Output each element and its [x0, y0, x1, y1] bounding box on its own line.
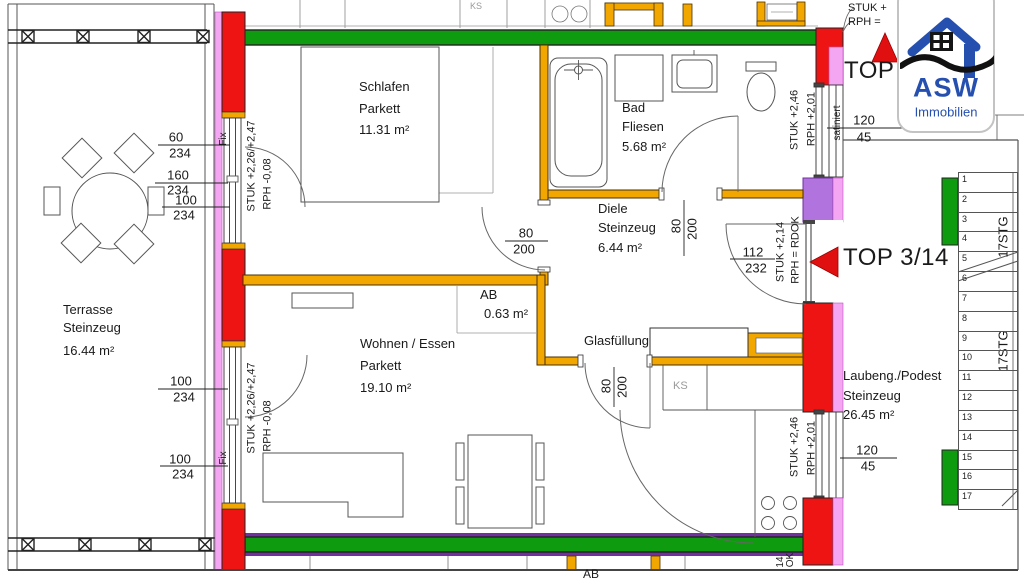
logo-subtitle: Immobilien — [915, 105, 978, 120]
room-wohnen-name: Wohnen / Essen — [360, 337, 455, 350]
dim-win100c-bot: 234 — [172, 468, 194, 481]
stair-number: 14 — [962, 432, 972, 442]
wall-glas-right — [650, 357, 803, 365]
room-wohnen-area: 19.10 m² — [360, 381, 411, 394]
dim-win120b-top: 120 — [856, 444, 878, 457]
kitchen-nook-inner — [756, 338, 802, 353]
stair-tread: 1 — [959, 173, 1017, 192]
stair-tread: 13 — [959, 410, 1017, 430]
stuk-partial-label: STUK + — [848, 3, 887, 14]
dim-door80a-bot: 200 — [513, 243, 535, 256]
room-diele-area: 6.44 m² — [598, 241, 642, 254]
room-laubengang-area: 26.45 m² — [843, 408, 894, 421]
stair-number: 7 — [962, 293, 967, 303]
ab-bottom-label: AB — [583, 568, 599, 580]
room-wohnen-floor: Parkett — [360, 359, 401, 372]
stair-tread: 4 — [959, 231, 1017, 251]
dim-win120a-bot: 45 — [857, 131, 871, 144]
wall-ab-diele — [537, 275, 545, 365]
red-wall-segment — [803, 303, 833, 412]
room-diele-name: Diele — [598, 202, 628, 215]
chair — [536, 443, 544, 480]
stair-number: 5 — [962, 253, 967, 263]
stair-number: 4 — [962, 233, 967, 243]
room-ab-name: AB — [480, 288, 497, 301]
swoosh-icon — [901, 56, 994, 70]
stuk-annotation: STUK +2,26/+2,47 — [247, 120, 258, 211]
wall-schlafen-wohnen — [243, 275, 537, 285]
stair-tread: 7 — [959, 291, 1017, 311]
chair — [44, 187, 60, 215]
stair-tread: 14 — [959, 430, 1017, 450]
room-terrasse-name: Terrasse — [63, 303, 113, 316]
dim-win100b-bot: 234 — [173, 391, 195, 404]
stair-green-block-bottom — [942, 450, 958, 505]
window-kitchen — [814, 410, 843, 500]
sideboard — [292, 293, 353, 308]
asw-logo: ASW Immobilien — [897, 0, 995, 133]
stuk-annotation: STUK +2,46 — [790, 417, 801, 477]
staircase-treads: 1234567891011121314151617 — [958, 172, 1018, 510]
glasfuellung-label: Glasfüllung — [584, 334, 649, 347]
dining-table — [468, 435, 532, 528]
stair-tread: 6 — [959, 271, 1017, 291]
stair-number: 10 — [962, 352, 972, 362]
floorplan: Terrasse Steinzeug 16.44 m² Schlafen Par… — [0, 0, 1024, 580]
top314-label: TOP 3/14 — [843, 246, 949, 270]
wall-bad-diele-right — [720, 190, 803, 198]
stair-tread: 17 — [959, 489, 1017, 509]
fridge-label-neighbour: KS — [470, 2, 482, 11]
stuk-annotation: STUK +2,14 — [776, 222, 787, 282]
chair — [456, 443, 464, 480]
floorplan-drawing — [0, 0, 1024, 580]
stair-tread: 12 — [959, 390, 1017, 410]
dim-win60-bot: 234 — [169, 147, 191, 160]
pink-strip — [829, 47, 843, 85]
stair-number: 9 — [962, 333, 967, 343]
stair-number: 16 — [962, 471, 972, 481]
room-schlafen-floor: Parkett — [359, 102, 400, 115]
pink-strip — [833, 303, 843, 412]
stair-tread: 11 — [959, 370, 1017, 390]
stair-tread: 16 — [959, 469, 1017, 489]
stair-tread: 10 — [959, 350, 1017, 370]
window-sill — [222, 503, 245, 509]
pink-strip — [833, 498, 843, 565]
stair-number: 8 — [962, 313, 967, 323]
room-bad-name: Bad — [622, 101, 645, 114]
green-wall-top — [240, 30, 818, 45]
rph-annotation: RPH -0,08 — [263, 400, 274, 451]
stair-tread: 8 — [959, 311, 1017, 331]
dim-win120b-bot: 45 — [861, 460, 875, 473]
stair-number: 2 — [962, 194, 967, 204]
dim-door80c-bot: 200 — [616, 376, 629, 398]
fridge-label: KS — [673, 381, 688, 392]
rph-annotation: RPH +2,01 — [807, 421, 818, 475]
stair-number: 11 — [962, 372, 971, 382]
window-sill — [222, 243, 245, 249]
chair — [148, 187, 164, 215]
glass-panel — [650, 328, 748, 357]
room-laubengang-floor: Steinzeug — [843, 389, 901, 402]
fix-label-upper: Fix — [219, 132, 229, 145]
rph-annotation: RPH -0,08 — [263, 158, 274, 209]
wall-bad-diele-left — [548, 190, 662, 198]
red-wall-segment — [222, 12, 245, 112]
stair-tread: 15 — [959, 450, 1017, 470]
logo-name: ASW — [913, 73, 979, 104]
dim-win100c-top: 100 — [169, 453, 191, 466]
chair — [536, 487, 544, 524]
toilet — [746, 62, 776, 111]
wall-schlafen-bad — [540, 45, 548, 203]
stair-number: 6 — [962, 273, 967, 283]
satiniert-label: satiniert — [833, 105, 843, 140]
window-wohnen — [224, 347, 241, 503]
dim-win160-top: 160 — [167, 169, 189, 182]
room-bad-floor: Fliesen — [622, 120, 664, 133]
room-schlafen-name: Schlafen — [359, 80, 410, 93]
stair-number: 17 — [962, 491, 972, 501]
stuk-annotation: STUK +2,26/+2,47 — [247, 362, 258, 453]
dim-door80b-bot: 200 — [686, 218, 699, 240]
room-diele-floor: Steinzeug — [598, 221, 656, 234]
violet-door-block — [803, 178, 833, 222]
annotation-ok: OK — [786, 553, 796, 567]
stair-tread: 3 — [959, 212, 1017, 232]
window-sill — [222, 112, 245, 118]
dim-win100a-top: 100 — [175, 194, 197, 207]
stair-number: 1 — [962, 174, 967, 184]
dim-win100b-top: 100 — [170, 375, 192, 388]
dim-win120a-top: 120 — [853, 114, 875, 127]
room-schlafen-area: 11.31 m² — [359, 123, 409, 136]
stair-number: 13 — [962, 412, 972, 422]
dim-door80b-top: 80 — [670, 219, 683, 233]
room-bad-area: 5.68 m² — [622, 140, 666, 153]
stair-tread: 9 — [959, 331, 1017, 351]
dim-entry-bot: 232 — [745, 262, 767, 275]
chair — [456, 487, 464, 524]
red-wall-segment — [222, 509, 245, 570]
window-sill — [222, 341, 245, 347]
washbasin — [672, 50, 717, 92]
dim-door80c-top: 80 — [600, 379, 613, 393]
room-terrasse-floor: Steinzeug — [63, 321, 121, 334]
dim-entry-top: 112 — [743, 246, 764, 259]
dim-win60-top: 60 — [169, 131, 183, 144]
stair-number: 12 — [962, 392, 972, 402]
bathtub — [550, 58, 607, 187]
wall-glas-left — [545, 357, 580, 365]
fix-label-lower: Fix — [219, 451, 229, 464]
washing-machine — [615, 55, 663, 101]
stair-tread: 5 — [959, 251, 1017, 271]
pink-strip — [833, 178, 843, 222]
stair-tread: 2 — [959, 192, 1017, 212]
dim-win100a-bot: 234 — [173, 209, 195, 222]
stair-number: 3 — [962, 214, 967, 224]
pink-strip-left — [215, 12, 222, 570]
red-wall-segment — [803, 498, 833, 565]
rph-annotation: RPH +2,01 — [807, 92, 818, 146]
rph-partial-label: RPH = — [848, 17, 881, 28]
room-ab-area: 0.63 m² — [484, 307, 528, 320]
rph-annotation: RPH = RDOK — [791, 216, 802, 284]
stair-green-block-top — [942, 178, 958, 245]
red-wall-segment — [222, 249, 245, 341]
stair-number: 15 — [962, 452, 972, 462]
stuk-annotation: STUK +2,46 — [790, 90, 801, 150]
room-terrasse-area: 16.44 m² — [63, 344, 114, 357]
left-exterior-wall — [215, 12, 245, 570]
dim-door80a-top: 80 — [519, 227, 533, 240]
room-laubengang-name: Laubeng./Podest — [843, 369, 941, 382]
